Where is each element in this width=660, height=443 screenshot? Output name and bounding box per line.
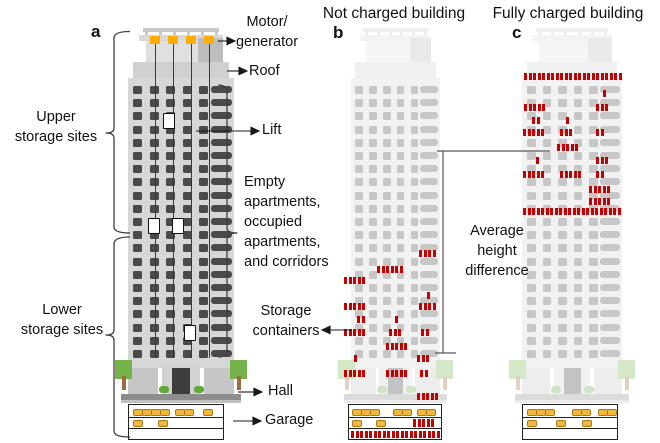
window (355, 231, 363, 239)
storage-container (603, 198, 606, 205)
storage-container (601, 73, 604, 80)
storage-container (435, 393, 438, 400)
window (369, 112, 377, 120)
window (355, 218, 363, 226)
corridor-bar (600, 231, 620, 238)
corridor-bar (211, 165, 232, 172)
window (383, 112, 391, 120)
storage-container (532, 171, 535, 178)
storage-container (391, 370, 394, 377)
window (355, 152, 363, 160)
corridor-bar (211, 324, 232, 331)
storage-container (596, 129, 599, 136)
window (397, 86, 405, 94)
window (133, 165, 142, 173)
window (558, 324, 567, 332)
storage-container (417, 355, 420, 362)
storage-container (594, 186, 597, 193)
storage-container (592, 73, 595, 80)
corridor-bar (211, 258, 232, 265)
window (369, 271, 377, 279)
window (369, 258, 377, 266)
label-roof: Roof (249, 61, 280, 81)
garage-divider (129, 417, 223, 418)
window (574, 324, 583, 332)
window (589, 231, 598, 239)
storage-container (589, 186, 592, 193)
tree-trunk (345, 376, 349, 390)
window (133, 126, 142, 134)
storage-container (433, 250, 436, 257)
window (411, 244, 419, 252)
storage-container (610, 73, 613, 80)
window (589, 350, 598, 358)
corridor-bar (211, 337, 232, 344)
storage-container (619, 73, 622, 80)
window (199, 284, 208, 292)
window (383, 218, 391, 226)
label-storage-containers: Storage containers (236, 301, 336, 341)
window (589, 139, 598, 147)
storage-container (422, 355, 425, 362)
window (411, 324, 419, 332)
window (355, 205, 363, 213)
window (574, 284, 583, 292)
window (574, 337, 583, 345)
storage-container (424, 250, 427, 257)
window (411, 297, 419, 305)
corridor-bar (600, 218, 620, 225)
window (558, 86, 567, 94)
storage-container (524, 104, 527, 111)
window (199, 231, 208, 239)
storage-container (417, 393, 420, 400)
window (558, 152, 567, 160)
lift-cable (173, 44, 174, 358)
storage-container (419, 431, 422, 439)
storage-container (400, 266, 403, 273)
garage-c (522, 404, 618, 440)
tree-trunk (625, 376, 629, 390)
corridor-bar (600, 271, 620, 278)
corridor-bar (420, 99, 438, 106)
window (589, 244, 598, 252)
window (574, 218, 583, 226)
storage-container (395, 370, 398, 377)
storage-container (354, 355, 357, 362)
storage-container (598, 198, 601, 205)
title-not-charged: Not charged building (312, 4, 476, 24)
storage-container (560, 129, 563, 136)
storage-container (410, 431, 413, 439)
label-upper-storage-sites: Upper storage sites (0, 107, 112, 147)
corridor-bar (600, 324, 620, 331)
corridor-bar (211, 112, 232, 119)
window (558, 244, 567, 252)
window (199, 178, 208, 186)
storage-container (428, 250, 431, 257)
window (383, 165, 391, 173)
corridor-bar (600, 310, 620, 317)
storage-container (386, 370, 389, 377)
storage-container (432, 431, 435, 439)
window (589, 297, 598, 305)
storage-container (344, 277, 347, 284)
storage-container (537, 171, 540, 178)
corridor-bar (600, 337, 620, 344)
storage-container (405, 431, 408, 439)
storage-container (422, 393, 425, 400)
window (355, 258, 363, 266)
window (383, 99, 391, 107)
window (199, 152, 208, 160)
window (383, 152, 391, 160)
window (397, 350, 405, 358)
window (199, 310, 208, 318)
storage-container (604, 208, 607, 215)
storage-container (378, 431, 381, 439)
storage-container (569, 73, 572, 80)
storage-container (420, 370, 423, 377)
window (383, 231, 391, 239)
storage-container (607, 186, 610, 193)
storage-container (394, 329, 397, 336)
window (397, 178, 405, 186)
window (199, 271, 208, 279)
storage-container (528, 171, 531, 178)
window (133, 178, 142, 186)
window (527, 86, 536, 94)
window (589, 112, 598, 120)
window (369, 192, 377, 200)
storage-container (427, 292, 430, 299)
crown-upper (539, 41, 589, 62)
storage-container (551, 73, 554, 80)
storage-container (425, 370, 428, 377)
tree-trunk (443, 376, 447, 390)
lift-car (184, 325, 196, 341)
storage-container (605, 104, 608, 111)
storage-container (542, 104, 545, 111)
lift-cable (209, 44, 210, 358)
motor-generator-block (186, 36, 196, 44)
corridor-bar (420, 284, 438, 291)
garage-car-icon (426, 409, 436, 417)
corridor-bar (211, 231, 232, 238)
storage-container (528, 129, 531, 136)
window (199, 258, 208, 266)
garage-arrow-head (253, 417, 261, 424)
window (355, 284, 363, 292)
storage-container (533, 73, 536, 80)
base-ledge (121, 400, 241, 403)
garage-a (128, 404, 224, 440)
storage-container (353, 329, 356, 336)
storage-container (583, 73, 586, 80)
window (383, 86, 391, 94)
corridor-bar (600, 178, 620, 185)
building-b (351, 28, 440, 410)
storage-container (362, 303, 365, 310)
corridor-bar (420, 231, 438, 238)
storage-container (395, 266, 398, 273)
storage-container (601, 171, 604, 178)
crown-shoulders (355, 62, 435, 78)
storage-container (349, 303, 352, 310)
storage-container (541, 129, 544, 136)
corridor-bar (211, 284, 232, 291)
storage-container (589, 198, 592, 205)
window (411, 205, 419, 213)
window (411, 271, 419, 279)
corridor-bar (211, 192, 232, 199)
storage-container (587, 73, 590, 80)
hall-wing (522, 368, 550, 394)
corridor-bar (600, 297, 620, 304)
storage-container (523, 208, 526, 215)
window (397, 139, 405, 147)
garage-divider (349, 428, 441, 429)
window (527, 337, 536, 345)
window (527, 324, 536, 332)
storage-container (542, 73, 545, 80)
garage-car-icon (527, 420, 537, 428)
window (397, 258, 405, 266)
window (411, 139, 419, 147)
storage-container (618, 208, 621, 215)
storage-container (560, 171, 563, 178)
window (199, 139, 208, 147)
corridor-bar (211, 310, 232, 317)
garage-car-icon (352, 420, 362, 428)
window (355, 99, 363, 107)
storage-container (566, 117, 569, 124)
window (411, 165, 419, 173)
window (369, 324, 377, 332)
storage-container (565, 129, 568, 136)
corridor-bar (420, 271, 438, 278)
storage-container (550, 208, 553, 215)
storage-container (398, 329, 401, 336)
label-hall: Hall (268, 381, 293, 401)
storage-container (428, 431, 431, 439)
window (355, 112, 363, 120)
window (383, 350, 391, 358)
storage-container (424, 303, 427, 310)
window (133, 139, 142, 147)
storage-container (419, 250, 422, 257)
bush-icon (194, 386, 204, 393)
window (589, 271, 598, 279)
storage-container (349, 329, 352, 336)
window (133, 152, 142, 160)
window (589, 337, 598, 345)
storage-container (598, 186, 601, 193)
window (527, 139, 536, 147)
storage-container (358, 329, 361, 336)
storage-container (569, 171, 572, 178)
window (199, 112, 208, 120)
window (369, 284, 377, 292)
window (411, 112, 419, 120)
motor-generator-block (204, 36, 214, 44)
corridor-bar (420, 310, 438, 317)
corridor-bar (420, 112, 438, 119)
window (411, 231, 419, 239)
window (589, 324, 598, 332)
storage-container (577, 208, 580, 215)
storage-container (395, 316, 398, 323)
garage-divider (129, 428, 223, 429)
storage-container (532, 129, 535, 136)
building-a (128, 28, 234, 410)
label-lower-storage-sites: Lower storage sites (4, 300, 120, 340)
storage-container (574, 73, 577, 80)
figure-lift-energy-storage: Not charged building Fully charged build… (0, 0, 660, 443)
storage-container (559, 208, 562, 215)
window (133, 324, 142, 332)
storage-container (431, 393, 434, 400)
window (527, 152, 536, 160)
window (397, 205, 405, 213)
window (355, 86, 363, 94)
window (558, 192, 567, 200)
window (574, 258, 583, 266)
window (527, 284, 536, 292)
storage-container (575, 144, 578, 151)
building-c (522, 28, 622, 410)
window (543, 350, 552, 358)
window (369, 139, 377, 147)
storage-container (423, 431, 426, 439)
storage-container (562, 144, 565, 151)
window (199, 192, 208, 200)
storage-container (541, 171, 544, 178)
window (355, 337, 363, 345)
window (411, 192, 419, 200)
window (558, 271, 567, 279)
garage-car-icon (370, 409, 380, 417)
storage-container (537, 129, 540, 136)
storage-container (564, 208, 567, 215)
window (589, 218, 598, 226)
storage-container (422, 419, 425, 427)
storage-container (382, 266, 385, 273)
window (397, 284, 405, 292)
garage-car-icon (545, 409, 555, 417)
garage-car-icon (158, 420, 168, 428)
window (199, 244, 208, 252)
garage-car-icon (184, 409, 194, 417)
crown-upper (366, 41, 411, 62)
window (558, 284, 567, 292)
crown-shoulders (133, 62, 228, 78)
window (527, 310, 536, 318)
corridor-bar (600, 112, 620, 119)
window (543, 139, 552, 147)
storage-container (362, 277, 365, 284)
window (589, 310, 598, 318)
storage-container (427, 419, 430, 427)
corridor-bar (420, 337, 438, 344)
bush-icon (551, 386, 561, 393)
hall-door (172, 368, 190, 394)
storage-container (358, 370, 361, 377)
window (199, 126, 208, 134)
window (411, 258, 419, 266)
corridor-bar (600, 350, 620, 357)
garage-car-icon (607, 409, 617, 417)
storage-container (396, 431, 399, 439)
storage-container (536, 157, 539, 164)
garage-divider (349, 417, 441, 418)
storage-container (428, 303, 431, 310)
window (574, 99, 583, 107)
window (199, 205, 208, 213)
window (369, 165, 377, 173)
storage-container (426, 355, 429, 362)
corridor-bar (211, 152, 232, 159)
storage-container (538, 73, 541, 80)
storage-container (595, 208, 598, 215)
corridor-bar (420, 258, 438, 265)
panel-label-a: a (91, 22, 100, 42)
window (527, 297, 536, 305)
storage-container (401, 431, 404, 439)
storage-container (568, 208, 571, 215)
window (355, 139, 363, 147)
window (383, 310, 391, 318)
corridor-bar (600, 284, 620, 291)
window (133, 99, 142, 107)
storage-container (596, 104, 599, 111)
storage-container (603, 90, 606, 97)
storage-container (404, 343, 407, 350)
storage-container (353, 370, 356, 377)
window (527, 178, 536, 186)
window (355, 244, 363, 252)
storage-container (383, 431, 386, 439)
window (199, 297, 208, 305)
window (369, 350, 377, 358)
storage-container (356, 431, 359, 439)
garage-car-icon (133, 420, 143, 428)
corridor-bar (211, 271, 232, 278)
tree-trunk (122, 376, 126, 390)
window (133, 284, 142, 292)
storage-container (529, 104, 532, 111)
storage-container (419, 303, 422, 310)
storage-container (565, 73, 568, 80)
crown-parapet (536, 28, 608, 32)
window (133, 231, 142, 239)
storage-container (578, 73, 581, 80)
window (133, 271, 142, 279)
window (355, 126, 363, 134)
window (527, 350, 536, 358)
window (574, 112, 583, 120)
storage-container (395, 343, 398, 350)
window (397, 126, 405, 134)
motor-generator-block (168, 36, 178, 44)
storage-container (573, 208, 576, 215)
lift-car (148, 218, 160, 234)
corridor-bar (211, 86, 232, 93)
storage-container (400, 343, 403, 350)
corridor-bar (600, 139, 620, 146)
corridor-bar (600, 244, 620, 251)
storage-container (609, 208, 612, 215)
